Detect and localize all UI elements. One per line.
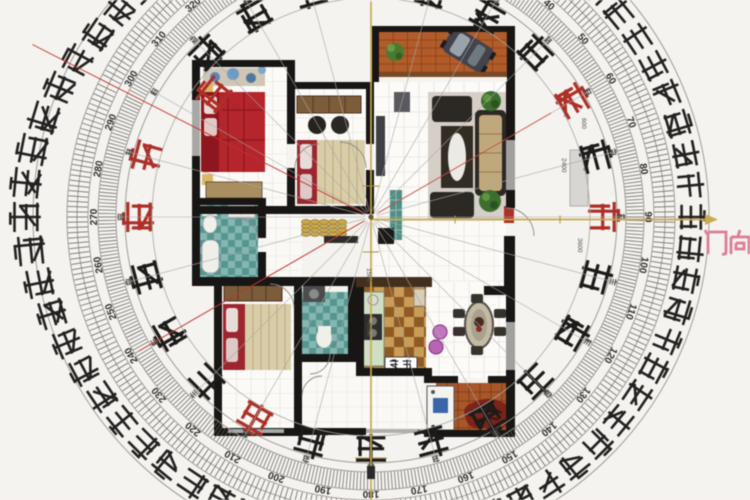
svg-text:1500: 1500 [365,268,372,283]
svg-text:600: 600 [580,118,587,129]
svg-text:90: 90 [642,211,653,223]
svg-text:3600: 3600 [576,238,583,253]
svg-text:270: 270 [89,208,100,225]
svg-text:3300: 3300 [365,322,372,337]
svg-text:2400: 2400 [560,158,567,173]
